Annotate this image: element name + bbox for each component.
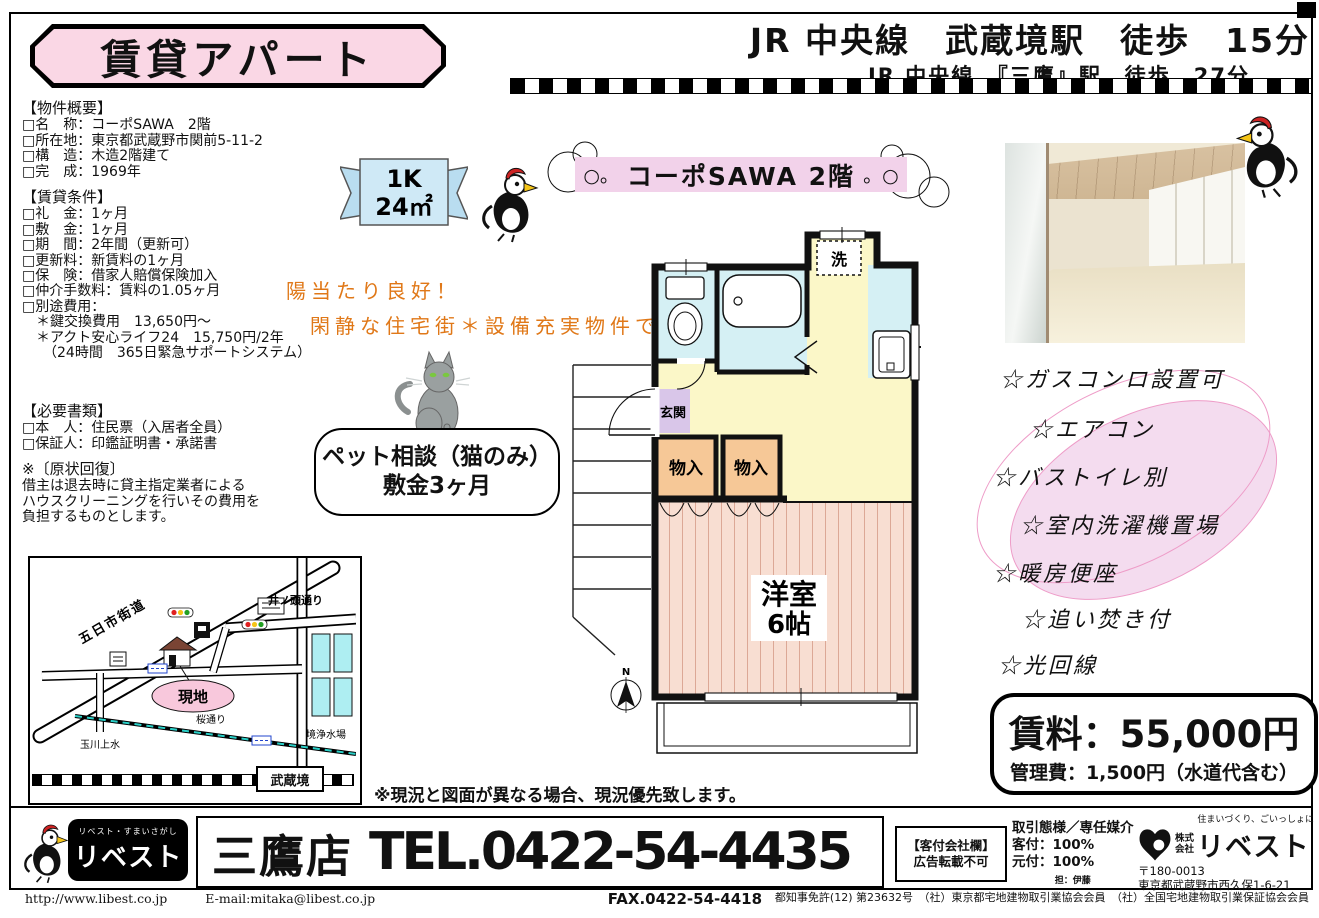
building-name-banner: ○。 コーポSAWA 2階 。○ (575, 157, 907, 192)
woodpecker-icon (478, 162, 542, 246)
website-url: http://www.libest.co.jp (25, 891, 167, 906)
rent-amount: 賃料：55,000円 (1009, 704, 1300, 758)
company-prefix: 株式 (1175, 834, 1194, 845)
map-road-label: 五日市街道 (76, 596, 149, 647)
restoration-line: 負担するものとします。 (22, 510, 332, 525)
map-road-label: 桜通り (196, 713, 226, 726)
company-info: 住まいづくり、ごいっしょに 株式 会社 リベスト 〒180-0013 東京都武蔵… (1138, 812, 1314, 892)
closet-label: 物入 (669, 458, 703, 479)
agent-box-line: 【客付会社欄】 (907, 838, 995, 854)
map-store-icon (194, 622, 210, 638)
room-name-label: 洋室 (761, 578, 817, 611)
map-sign-icon (110, 652, 126, 666)
mascot-bird-icon (20, 820, 72, 886)
bus-stop-icon (252, 736, 271, 745)
feature-item: ☆室内洗濯機置場 (1020, 508, 1220, 540)
room-size-label: 6帖 (767, 610, 811, 640)
toilet-icon (666, 277, 704, 299)
footer-divider (9, 806, 1311, 808)
room-photo (1005, 143, 1245, 343)
overview-item: □所在地：東京都武蔵野市関前5-11-2 (22, 134, 332, 149)
deal-line: 客付：100% (1012, 837, 1134, 854)
deal-line: 元付：100% (1012, 854, 1134, 871)
pet-note-line: ペット相談（猫のみ） (322, 443, 552, 472)
title-badge: 賃貸アパート (30, 24, 446, 88)
company-name: リベスト (1197, 825, 1310, 864)
conditions-item: （24時間 365日緊急サポートシステム） (22, 346, 332, 361)
map-station-label: 武蔵境 (256, 766, 324, 792)
map-road-label: 井ノ頭通り (268, 593, 323, 607)
deal-line: 取引態様／専任媒介 (1012, 820, 1134, 837)
traffic-light-icon (242, 620, 267, 629)
logo-name: リベスト (74, 837, 183, 874)
url-email-line: http://www.libest.co.jp E-mail:mitaka@li… (25, 891, 375, 906)
conditions-item: □礼 金：1ヶ月 (22, 207, 332, 222)
company-tagline: 住まいづくり、ごいっしょに (1138, 812, 1314, 825)
overview-item: □名 称：コーポSAWA 2階 (22, 118, 332, 133)
restoration-line: 借主は退去時に貸主指定業者による (22, 479, 332, 494)
restoration-line: ハウスクリーニングを行いその費用を (22, 495, 332, 510)
banner-deco: ○。 (583, 161, 619, 188)
feature-item: ☆エアコン (1030, 412, 1155, 444)
badge-area: 24㎡ (375, 193, 432, 221)
bathtub-icon (723, 275, 801, 327)
conditions-heading: 【賃貸条件】 (22, 190, 332, 205)
store-contact-box: 三鷹店 TEL.0422-54-4435 FAX.0422-54-4418 (196, 816, 884, 888)
company-heart-logo (1138, 826, 1172, 864)
company-prefix: 会社 (1175, 845, 1194, 856)
documents-item: □本 人：住民票（入居者全員） (22, 421, 332, 436)
pet-note-line: 敷金3ヶ月 (383, 472, 491, 501)
disclaimer: ※現況と図面が異なる場合、現況優先致します。 (374, 781, 746, 806)
price-box: 賃料：55,000円 管理費：1,500円（水道代含む） (990, 693, 1318, 795)
north-arrow-icon: N (611, 667, 641, 713)
overview-heading: 【物件概要】 (22, 101, 332, 116)
stairs (573, 365, 651, 655)
checker-band (510, 78, 1312, 94)
floor-plan: N 洗 玄関 物入 物入 洋室 6帖 (565, 225, 945, 770)
company-postal: 〒180-0013 (1138, 864, 1314, 878)
access-map: 五日市街道 井ノ頭通り 桜通り 玉川上水 境浄水場 現地 武蔵境 (28, 556, 362, 805)
feature-item: ☆追い焚き付 (1022, 602, 1172, 634)
license-line: 都知事免許(12) 第23632号 （社）東京都宅地建物取引業協会会員 （社）全… (775, 889, 1309, 905)
libest-logo: リベスト・すまいさがし リベスト (68, 819, 188, 881)
traffic-light-icon (168, 608, 193, 617)
map-water-label: 玉川上水 (80, 739, 120, 751)
fax-number: FAX.0422-54-4418 (608, 890, 762, 908)
agent-box-line: 広告転載不可 (913, 854, 988, 870)
pet-note: ペット相談（猫のみ） 敷金3ヶ月 (314, 428, 560, 516)
map-site-label: 現地 (178, 688, 208, 706)
agent-company-box: 【客付会社欄】 広告転載不可 (895, 826, 1007, 882)
map-drawing: 五日市街道 井ノ頭通り 桜通り 玉川上水 境浄水場 現地 (30, 558, 356, 799)
management-fee: 管理費：1,500円（水道代含む） (1010, 758, 1298, 785)
feature-item: ☆暖房便座 (993, 556, 1118, 588)
conditions-item: □期 間：2年間（更新可） (22, 238, 332, 253)
section-restoration: ※〔原状回復〕 借主は退去時に貸主指定業者による ハウスクリーニングを行いその費… (22, 462, 332, 526)
window (911, 325, 919, 380)
map-water-plant (312, 634, 352, 716)
balcony (657, 703, 917, 753)
washer-label: 洗 (831, 250, 847, 269)
overview-item: □構 造：木造2階建て (22, 149, 332, 164)
page-title: 賃貸アパート (100, 26, 375, 86)
section-overview: 【物件概要】 □名 称：コーポSAWA 2階 □所在地：東京都武蔵野市関前5-1… (22, 101, 332, 180)
woodpecker-icon (1228, 110, 1306, 202)
svg-text:N: N (622, 667, 630, 678)
conditions-item: □敷 金：1ヶ月 (22, 223, 332, 238)
store-name: 三鷹店 (212, 820, 353, 885)
restoration-heading: ※〔原状回復〕 (22, 462, 332, 477)
badge-type: 1K (386, 165, 423, 193)
bus-stop-icon (148, 664, 167, 673)
map-facility-label: 境浄水場 (306, 728, 346, 741)
conditions-item: □更新料：新賃料の1ヶ月 (22, 254, 332, 269)
entrance-label: 玄関 (660, 405, 686, 421)
layout-badge: 1K 24㎡ (340, 153, 468, 235)
transaction-terms: 取引態様／専任媒介 客付：100% 元付：100% 担：伊藤 (1012, 820, 1134, 890)
closet-label: 物入 (734, 458, 768, 479)
rental-flyer: 賃貸アパート JR 中央線 武蔵境駅 徒歩 15分 JR 中央線 『三鷹』駅 徒… (0, 0, 1319, 918)
access-line-1: JR 中央線 武蔵境駅 徒歩 15分 (540, 14, 1310, 62)
phone-number: TEL.0422-54-4435 (369, 822, 850, 882)
logo-tagline: リベスト・すまいさがし (78, 826, 177, 837)
feature-item: ☆ガスコンロ設置可 (1000, 362, 1225, 394)
section-documents: 【必要書類】 □本 人：住民票（入居者全員） □保証人：印鑑証明書・承諾書 (22, 404, 332, 452)
overview-item: □完 成：1969年 (22, 165, 332, 180)
feature-item: ☆バストイレ別 (993, 460, 1168, 492)
documents-heading: 【必要書類】 (22, 404, 332, 419)
banner-deco: 。○ (863, 161, 899, 188)
feature-item: ☆光回線 (998, 648, 1098, 680)
email-address: E-mail:mitaka@libest.co.jp (205, 891, 375, 906)
deal-person: 担：伊藤 (1012, 873, 1134, 890)
documents-item: □保証人：印鑑証明書・承諾書 (22, 437, 332, 452)
building-name: コーポSAWA 2階 (627, 157, 855, 193)
